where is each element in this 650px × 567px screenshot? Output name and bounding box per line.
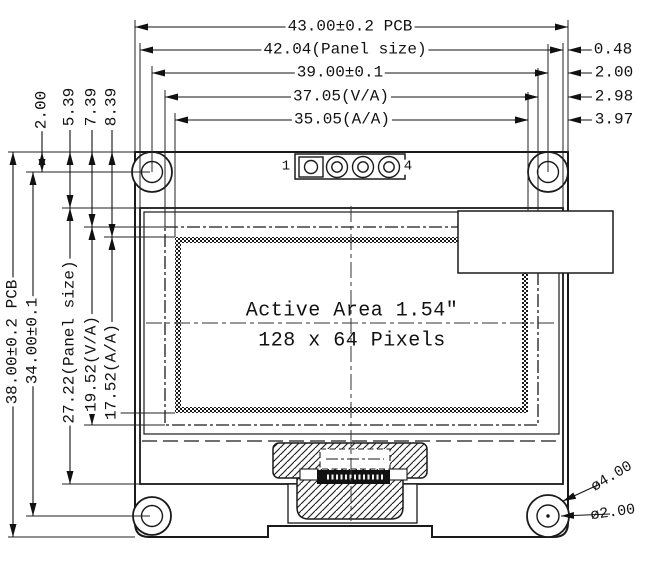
dim-aa-height-label: 17.52(A/A) — [104, 322, 121, 422]
technical-drawing: 43.00±0.2 PCB 42.04(Panel size) 39.00±0.… — [0, 0, 650, 567]
pin-header — [295, 154, 405, 179]
dim-right-offset-2-label: 2.00 — [593, 65, 635, 82]
dim-top-offset-4-label: 8.39 — [104, 86, 121, 128]
dim-aa-width-label: 35.05(A/A) — [292, 112, 392, 129]
dim-hole-vspacing-label: 34.00±0.1 — [25, 296, 42, 386]
dim-va-width-label: 37.05(V/A) — [291, 89, 391, 106]
dim-top-offset-3-label: 7.39 — [84, 86, 101, 128]
fpc-lower-block — [297, 478, 403, 519]
dim-panel-height-label: 27.22(Panel size) — [62, 258, 79, 425]
dim-top-offset-2-label: 5.39 — [62, 86, 79, 128]
dim-right-offset-1-label: 0.48 — [592, 42, 634, 59]
dim-pcb-height-label: 38.00±0.2 PCB — [5, 278, 22, 407]
dim-va-height-label: 19.52(V/A) — [84, 314, 101, 414]
active-area-resolution: 128 x 64 Pixels — [258, 331, 446, 352]
dim-top-offset-1-label: 2.00 — [34, 89, 51, 131]
dim-right-offset-3-label: 2.98 — [593, 89, 635, 106]
fpc-film-rect — [458, 211, 613, 273]
dim-pcb-width-label: 43.00±0.2 PCB — [286, 19, 415, 36]
pin-1-label: 1 — [281, 160, 291, 175]
pin-4-label: 4 — [403, 160, 413, 175]
dim-panel-width-label: 42.04(Panel size) — [261, 42, 428, 59]
active-area-title: Active Area 1.54″ — [246, 301, 459, 322]
dim-hole-spacing-label: 39.00±0.1 — [295, 65, 385, 82]
dim-right-offset-4-label: 3.97 — [593, 112, 635, 129]
